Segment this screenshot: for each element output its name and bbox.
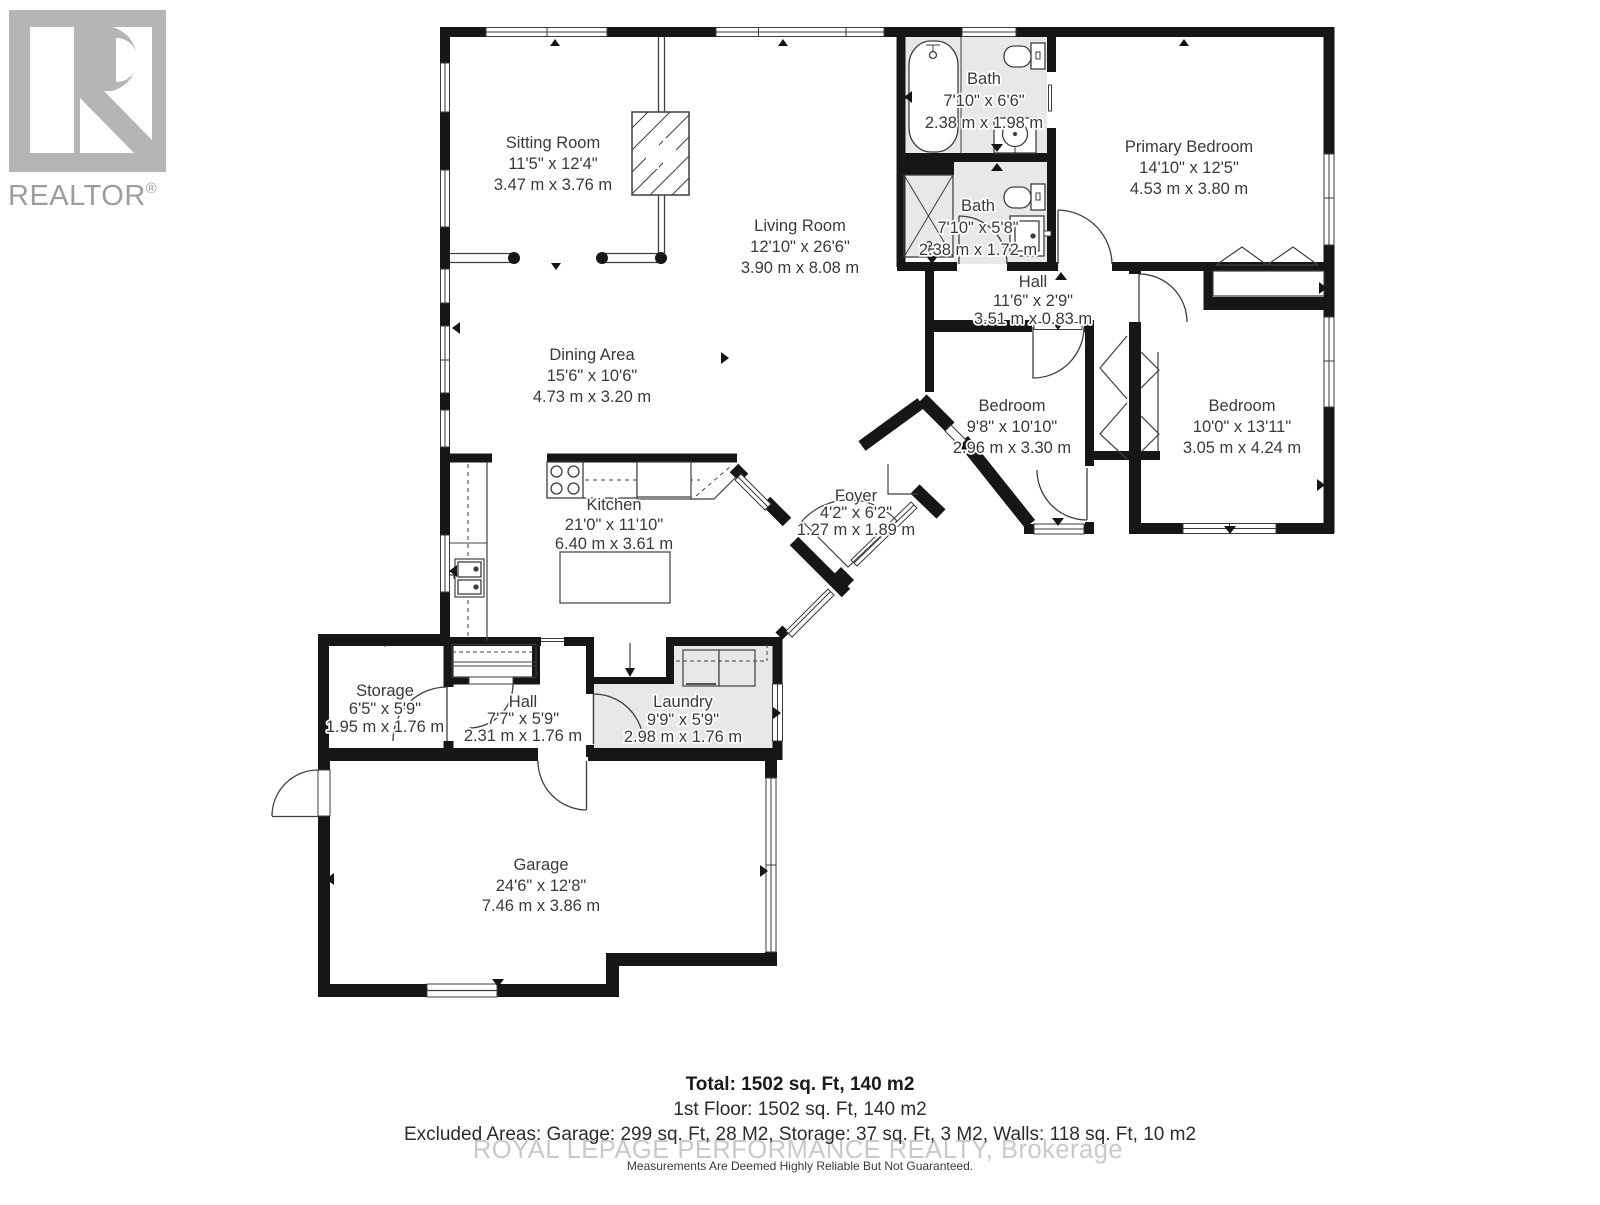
svg-text:1st Floor: 1502 sq. Ft, 140 m2: 1st Floor: 1502 sq. Ft, 140 m2 <box>673 1099 926 1120</box>
svg-text:Excluded Areas: Garage: 299 sq: Excluded Areas: Garage: 299 sq. Ft, 28 M… <box>404 1124 1196 1145</box>
svg-text:Total: 1502 sq. Ft, 140 m2: Total: 1502 sq. Ft, 140 m2 <box>686 1074 915 1095</box>
svg-text:Measurements Are Deemed Highly: Measurements Are Deemed Highly Reliable … <box>627 1159 973 1173</box>
svg-text:REALTOR®: REALTOR® <box>8 180 157 212</box>
svg-text:Primary Bedroom14'10" x 12'5"4: Primary Bedroom14'10" x 12'5"4.53 m x 3.… <box>1125 138 1253 198</box>
svg-text:Living Room12'10" x 26'6"3.90: Living Room12'10" x 26'6"3.90 m x 8.08 m <box>741 217 859 277</box>
svg-text:Sitting Room11'5" x 12'4"3.47: Sitting Room11'5" x 12'4"3.47 m x 3.76 m <box>494 134 612 194</box>
svg-text:Dining Area15'6" x 10'6"4.73 m: Dining Area15'6" x 10'6"4.73 m x 3.20 m <box>533 346 651 406</box>
